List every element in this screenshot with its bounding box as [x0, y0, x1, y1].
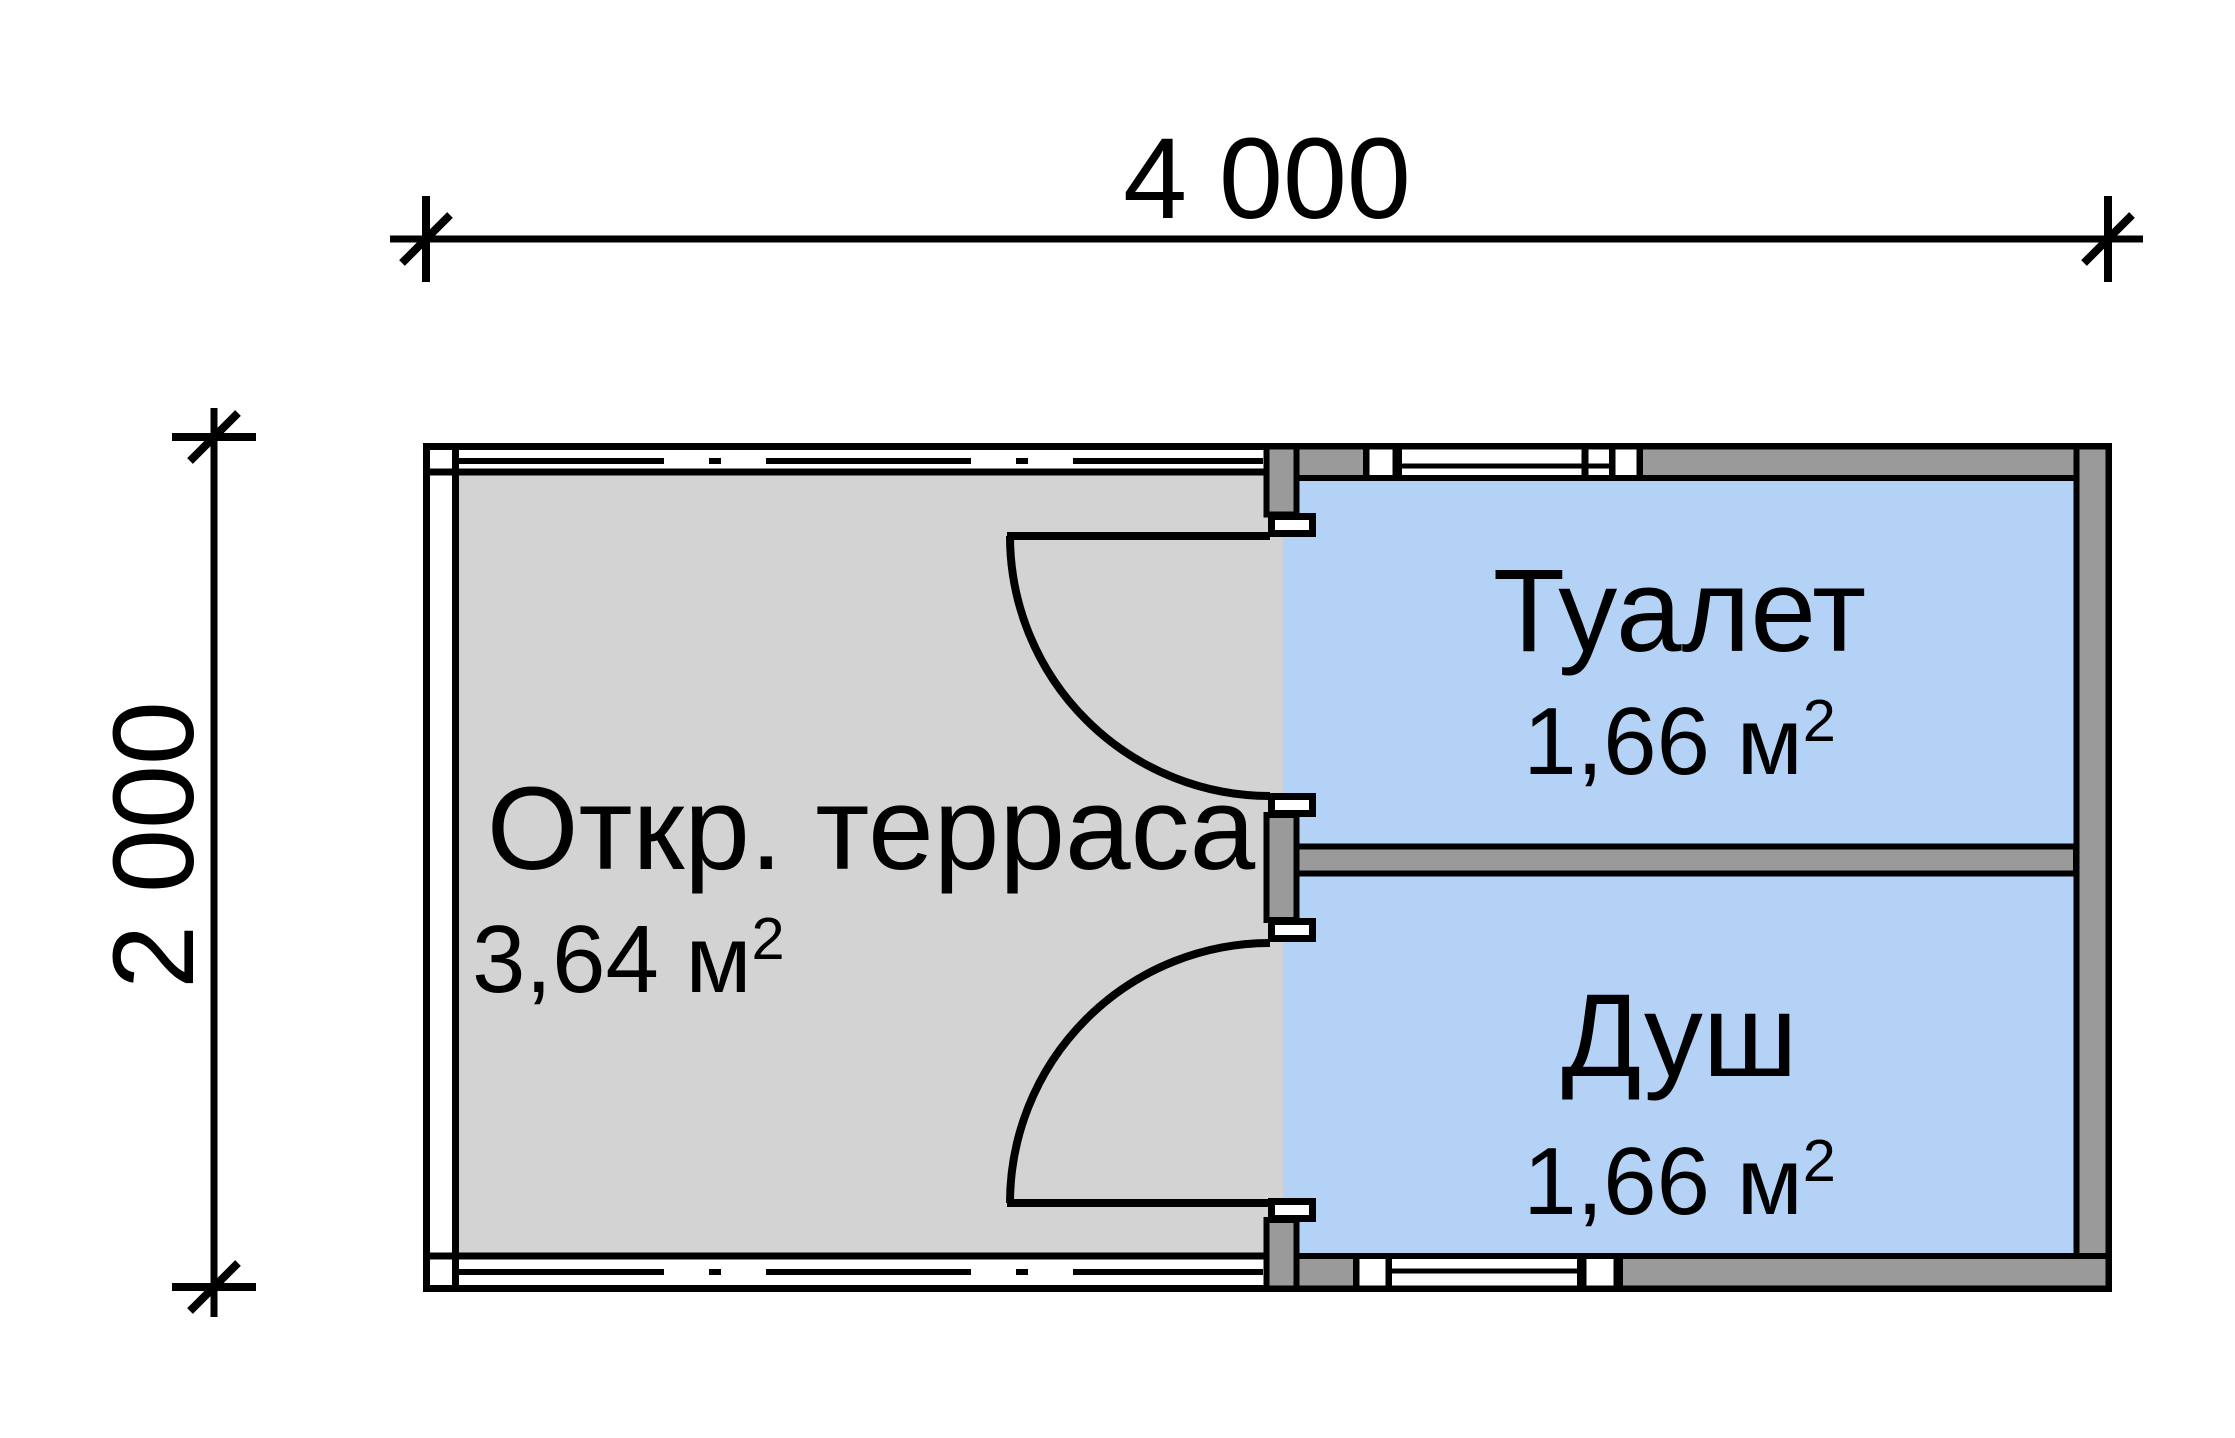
terrace-name-label: Откр. терраса: [459, 770, 1283, 888]
wall-top-left-segment: [1294, 447, 1366, 479]
window-top-glazing: [1399, 447, 1612, 479]
window-top-right-jamb: [1613, 447, 1640, 479]
shower-area-label: 1,66 м2: [1283, 1134, 2076, 1230]
wall-bottom-left-segment: [1294, 1256, 1356, 1289]
terrace-area-value: 3,64 м: [472, 906, 752, 1013]
floor-plan-canvas: 4 000 2 000 Откр. терраса 3,64 м2 Туалет…: [0, 0, 2235, 1438]
window-top-left-jamb: [1367, 447, 1396, 479]
partition-stub-top: [1267, 447, 1297, 515]
toilet-name-label: Туалет: [1283, 552, 2076, 670]
dimension-height-label: 2 000: [97, 640, 213, 1050]
toilet-door-jamb-top: [1272, 517, 1313, 534]
shower-door-jamb-top: [1272, 922, 1313, 939]
shower-name-label: Душ: [1283, 977, 2076, 1095]
window-bottom: [1357, 1256, 1617, 1289]
wall-between-rooms: [1294, 847, 2076, 874]
terrace-area-label: 3,64 м2: [472, 912, 785, 1008]
toilet-area-label: 1,66 м2: [1283, 694, 2076, 790]
window-bottom-right-jamb: [1584, 1256, 1617, 1289]
toilet-area-value: 1,66 м: [1523, 688, 1803, 795]
shower-area-sup: 2: [1803, 1127, 1836, 1194]
wall-bottom-right-segment: [1620, 1256, 2109, 1289]
shower-area-value: 1,66 м: [1523, 1128, 1803, 1235]
toilet-area-sup: 2: [1803, 687, 1836, 754]
wall-right: [2077, 447, 2109, 1289]
wall-top-right-segment: [1640, 447, 2109, 479]
partition-stub-bottom: [1267, 1220, 1297, 1289]
terrace-area-sup: 2: [752, 905, 785, 972]
window-top: [1367, 447, 1640, 479]
dimension-width-label: 4 000: [1067, 122, 1467, 237]
window-bottom-left-jamb: [1357, 1256, 1389, 1289]
